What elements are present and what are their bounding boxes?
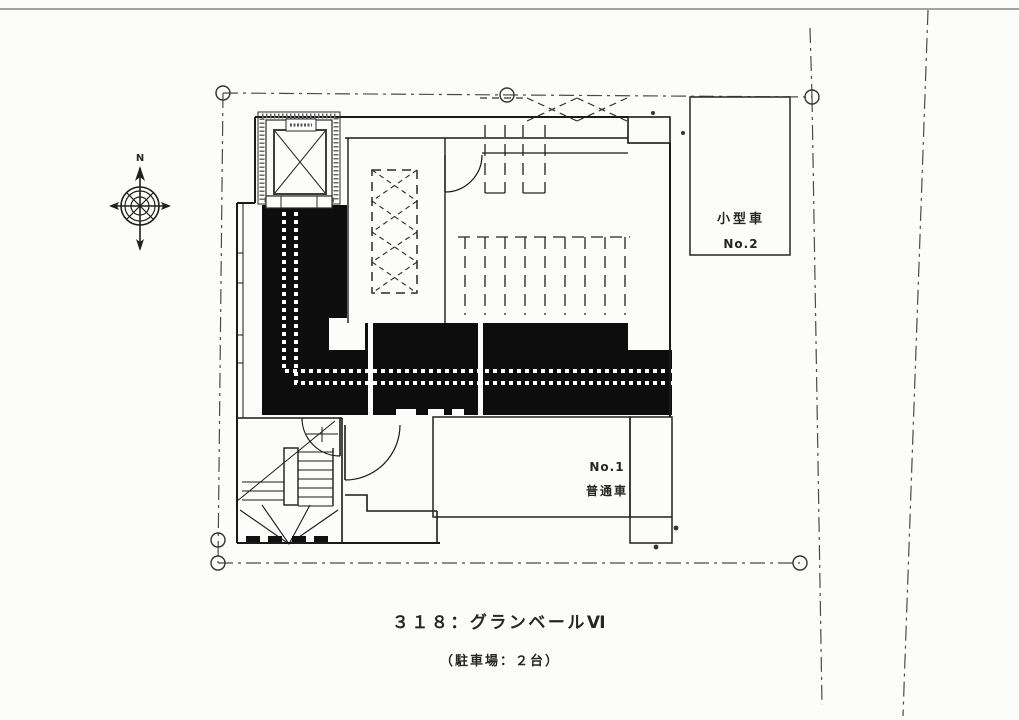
site-plan-page: N 小型車 No.2 No.1 普通車 ３１８：グランベールⅥ （駐車場：２台） xyxy=(0,0,1019,720)
parking-space-no2-label: 小型車 No.2 xyxy=(691,208,791,256)
staircase xyxy=(236,421,338,544)
compass-rose-icon xyxy=(109,166,171,251)
plan-subtitle: （駐車場：２台） xyxy=(250,650,750,674)
parking-space-no1-number: No.1 xyxy=(557,455,657,479)
parking-space-no1-type: 普通車 xyxy=(557,479,657,503)
skylight-hatch xyxy=(372,170,417,293)
door-arc-stair-lobby xyxy=(302,418,340,456)
door-arc-lower-room xyxy=(345,425,400,480)
parking-space-no2-type: 小型車 xyxy=(691,208,791,232)
elevator-platform xyxy=(266,196,332,208)
bike-stalls-middle xyxy=(458,237,630,315)
compass-north-label: N xyxy=(132,153,148,165)
elevator-shaft xyxy=(258,112,340,208)
parking-space-no2-number: No.2 xyxy=(691,232,791,256)
parking-space-no1-label: No.1 普通車 xyxy=(557,455,657,503)
door-arc-corridor xyxy=(445,155,482,192)
bike-stalls-upper xyxy=(485,125,545,193)
plan-title: ３１８：グランベールⅥ xyxy=(250,611,750,635)
